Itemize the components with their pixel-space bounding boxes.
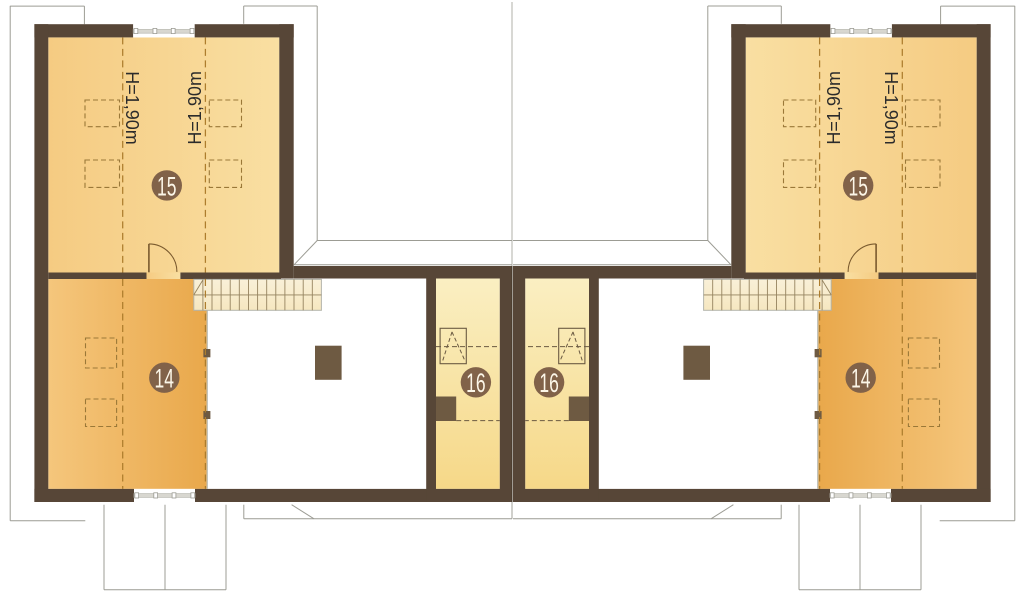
svg-text:H=1,90m: H=1,90m xyxy=(185,71,205,145)
svg-text:15: 15 xyxy=(157,171,177,201)
svg-text:15: 15 xyxy=(848,171,868,201)
svg-text:16: 16 xyxy=(466,368,486,398)
svg-text:H=1,90m: H=1,90m xyxy=(122,71,142,145)
svg-text:H=1,90m: H=1,90m xyxy=(824,71,844,145)
svg-text:H=1,90m: H=1,90m xyxy=(881,71,901,145)
svg-text:16: 16 xyxy=(539,368,559,398)
svg-text:14: 14 xyxy=(155,364,175,394)
svg-text:14: 14 xyxy=(851,364,871,394)
